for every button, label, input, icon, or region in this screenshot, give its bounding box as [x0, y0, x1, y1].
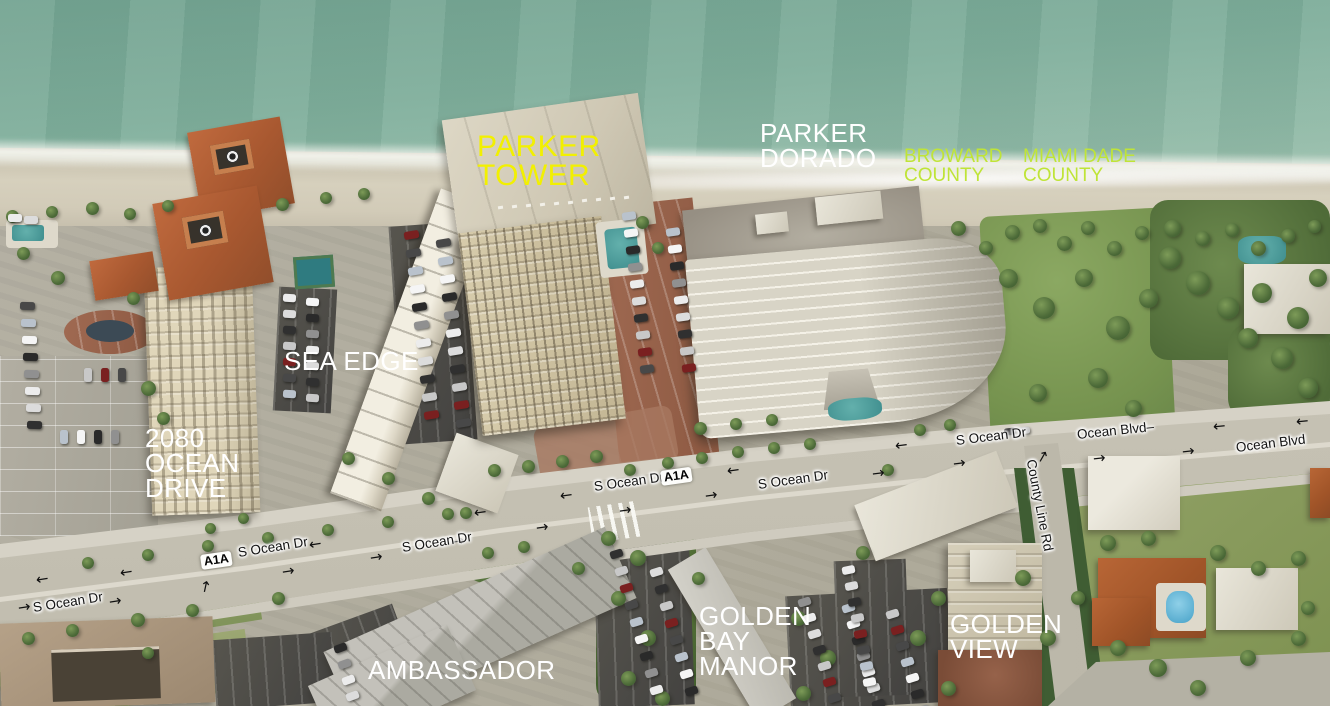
palm-tree: [1015, 570, 1031, 586]
label-parker-dorado: PARKER DORADO: [760, 121, 877, 171]
traffic-arrow-1: →: [17, 599, 32, 616]
parked-car: [283, 390, 297, 399]
palm-tree: [1125, 400, 1142, 417]
palm-tree: [51, 271, 65, 285]
palm-tree: [856, 546, 870, 560]
parked-car: [283, 294, 297, 303]
traffic-arrow-4: →: [108, 593, 123, 610]
beach-chair: [512, 205, 517, 209]
palm-tree: [556, 455, 569, 468]
beach-chair: [540, 202, 545, 206]
palm-tree: [590, 450, 603, 463]
palm-tree: [1110, 640, 1126, 656]
label-parker-tower: PARKER TOWER: [477, 132, 601, 190]
palm-tree: [1291, 551, 1306, 566]
parked-car: [111, 430, 119, 444]
parked-car: [24, 370, 39, 379]
palm-tree: [17, 247, 30, 260]
beach-chair: [526, 203, 531, 207]
parked-car: [94, 430, 102, 444]
palm-tree: [1164, 220, 1181, 237]
parked-car: [306, 330, 320, 339]
palm-tree: [1309, 269, 1327, 287]
traffic-arrow-13: →: [535, 519, 550, 536]
beach-chair: [568, 200, 573, 204]
palm-tree: [124, 208, 136, 220]
building-parker-dorado-penthouse-2: [755, 211, 789, 234]
palm-tree: [82, 557, 94, 569]
palm-tree: [696, 452, 708, 464]
pool-beach-left: [12, 225, 44, 241]
palm-tree: [1106, 316, 1130, 340]
parked-car: [118, 368, 126, 382]
palm-tree: [518, 541, 530, 553]
palm-tree: [488, 464, 501, 477]
palm-tree: [342, 452, 355, 465]
palm-tree: [127, 292, 140, 305]
palm-tree: [931, 591, 946, 606]
traffic-arrow-2: ←: [35, 571, 50, 588]
label-golden-view: GOLDEN VIEW: [950, 612, 1062, 662]
parked-car: [24, 216, 38, 224]
palm-tree: [358, 188, 370, 200]
traffic-arrow-14: →: [704, 487, 719, 504]
parked-car: [306, 394, 320, 403]
pool-bottom-right: [1166, 591, 1194, 623]
palm-tree: [1301, 601, 1315, 615]
palm-tree: [630, 550, 646, 566]
palm-tree: [422, 492, 435, 505]
building-golden-view-penthouse: [970, 550, 1016, 582]
building-2080-roof-ring-mid: [199, 224, 212, 237]
palm-tree: [1308, 220, 1321, 233]
palm-tree: [1135, 226, 1149, 240]
parked-car: [22, 336, 37, 345]
parked-car: [101, 368, 109, 382]
palm-tree: [766, 414, 778, 426]
palm-tree: [442, 508, 454, 520]
parked-car: [306, 298, 320, 307]
traffic-arrow-12: →: [618, 502, 633, 519]
palm-tree: [382, 516, 394, 528]
palm-tree: [1298, 378, 1318, 398]
palm-tree: [652, 242, 664, 254]
traffic-arrow-22: ←: [1212, 418, 1226, 434]
house-gray-bottom-right: [1216, 568, 1298, 630]
label-sea-edge: SEA EDGE: [284, 349, 419, 374]
palm-tree: [572, 562, 585, 575]
traffic-arrow-10: ←: [473, 504, 488, 521]
palm-tree: [1281, 229, 1295, 243]
lawn-right-of-parker-dorado: [979, 207, 1176, 441]
palm-tree: [66, 624, 79, 637]
palm-tree: [804, 438, 816, 450]
palm-tree: [276, 198, 289, 211]
parked-car: [8, 214, 22, 222]
traffic-arrow-16: ←: [894, 437, 908, 453]
tennis-court: [293, 255, 335, 290]
palm-tree: [1088, 368, 1108, 388]
traffic-arrow-6: ←: [308, 536, 323, 553]
palm-tree: [1139, 289, 1158, 308]
traffic-arrow-23: ←: [1295, 413, 1309, 429]
palm-tree: [142, 647, 154, 659]
palm-tree: [914, 424, 926, 436]
parked-car: [26, 404, 41, 413]
parked-car: [283, 310, 297, 319]
palm-tree: [601, 531, 616, 546]
palm-tree: [1029, 384, 1047, 402]
palm-tree: [1271, 347, 1293, 369]
parked-car: [77, 430, 85, 444]
house-orange-right-edge: [1310, 468, 1330, 518]
traffic-arrow-3: ←: [119, 564, 134, 581]
palm-tree: [238, 513, 249, 524]
house-orange-roof-wing: [1092, 598, 1150, 646]
palm-tree: [142, 549, 154, 561]
palm-tree: [186, 604, 199, 617]
palm-tree: [1287, 307, 1309, 329]
traffic-arrow-7: →: [369, 549, 384, 566]
palm-tree: [1252, 283, 1272, 303]
palm-tree: [86, 202, 99, 215]
palm-tree: [460, 507, 472, 519]
palm-tree: [621, 671, 636, 686]
palm-tree: [1149, 659, 1167, 677]
palm-tree: [202, 540, 214, 552]
palm-tree: [1033, 219, 1047, 233]
palm-tree: [636, 216, 649, 229]
beach-chair: [554, 201, 559, 205]
palm-tree: [1251, 561, 1266, 576]
palm-tree: [732, 446, 744, 458]
traffic-arrow-20: →: [1092, 450, 1106, 466]
parked-car: [21, 319, 36, 328]
label-ambassador: AMBASSADOR: [368, 658, 556, 683]
palm-tree: [1238, 328, 1258, 348]
parked-car: [60, 430, 68, 444]
palm-tree: [1186, 271, 1210, 295]
palm-tree: [999, 269, 1018, 288]
palm-tree: [205, 523, 216, 534]
palm-tree: [482, 547, 494, 559]
palm-tree: [382, 472, 395, 485]
palm-tree: [951, 221, 966, 236]
parked-car: [84, 368, 92, 382]
parked-car: [27, 421, 42, 430]
palm-tree: [1141, 531, 1156, 546]
parked-car: [306, 378, 320, 387]
palm-tree: [1071, 591, 1085, 605]
fountain: [86, 320, 134, 342]
palm-tree: [1195, 231, 1210, 246]
traffic-arrow-5: →: [281, 563, 296, 580]
annotated-aerial-photo: PARKER TOWERPARKER DORADOSEA EDGE2080 OC…: [0, 0, 1330, 706]
palm-tree: [730, 418, 742, 430]
palm-tree: [910, 630, 926, 646]
palm-tree: [1057, 236, 1072, 251]
palm-tree: [1251, 241, 1266, 256]
palm-tree: [1190, 680, 1206, 696]
palm-tree: [162, 200, 174, 212]
palm-tree: [131, 613, 145, 627]
palm-tree: [320, 192, 332, 204]
parked-car: [20, 302, 35, 311]
label-golden-bay-manor: GOLDEN BAY MANOR: [699, 604, 811, 680]
palm-tree: [1291, 631, 1306, 646]
palm-tree: [662, 457, 674, 469]
palm-tree: [796, 686, 811, 701]
palm-tree: [979, 241, 993, 255]
traffic-arrow-21: →: [1181, 443, 1195, 459]
palm-tree: [46, 206, 58, 218]
palm-tree: [1100, 535, 1116, 551]
palm-tree: [1225, 223, 1239, 237]
parked-car: [23, 353, 38, 362]
palm-tree: [1159, 247, 1181, 269]
palm-tree: [944, 419, 956, 431]
traffic-arrow-11: ←: [559, 487, 574, 504]
traffic-arrow-18: →: [952, 455, 966, 471]
palm-tree: [1033, 297, 1055, 319]
palm-tree: [1005, 225, 1020, 240]
traffic-arrow-15: ←: [726, 462, 741, 479]
palm-tree: [322, 524, 334, 536]
palm-tree: [1075, 269, 1093, 287]
label-2080-ocean-drive: 2080 OCEAN DRIVE: [145, 426, 239, 502]
label-broward-county: BROWARD COUNTY: [904, 147, 1003, 186]
parked-car: [306, 314, 320, 323]
palm-tree: [1081, 221, 1095, 235]
palm-tree: [941, 681, 956, 696]
label-miami-dade-county: MIAMI DADE COUNTY: [1023, 147, 1136, 186]
palm-tree: [1210, 545, 1226, 561]
palm-tree: [141, 381, 156, 396]
palm-tree: [22, 632, 35, 645]
palm-tree: [1107, 241, 1122, 256]
palm-tree: [272, 592, 285, 605]
palm-tree: [522, 460, 535, 473]
palm-tree: [768, 442, 780, 454]
palm-tree: [692, 572, 705, 585]
palm-tree: [1240, 650, 1256, 666]
parking-lot-left: [0, 356, 158, 536]
traffic-arrow-17: →: [871, 465, 885, 481]
parked-car: [25, 387, 40, 396]
palm-tree: [694, 422, 707, 435]
house-white-right: [1088, 456, 1180, 530]
parked-car: [283, 326, 297, 335]
palm-tree: [1217, 297, 1239, 319]
building-2080-roof-ring-upper: [226, 150, 239, 163]
